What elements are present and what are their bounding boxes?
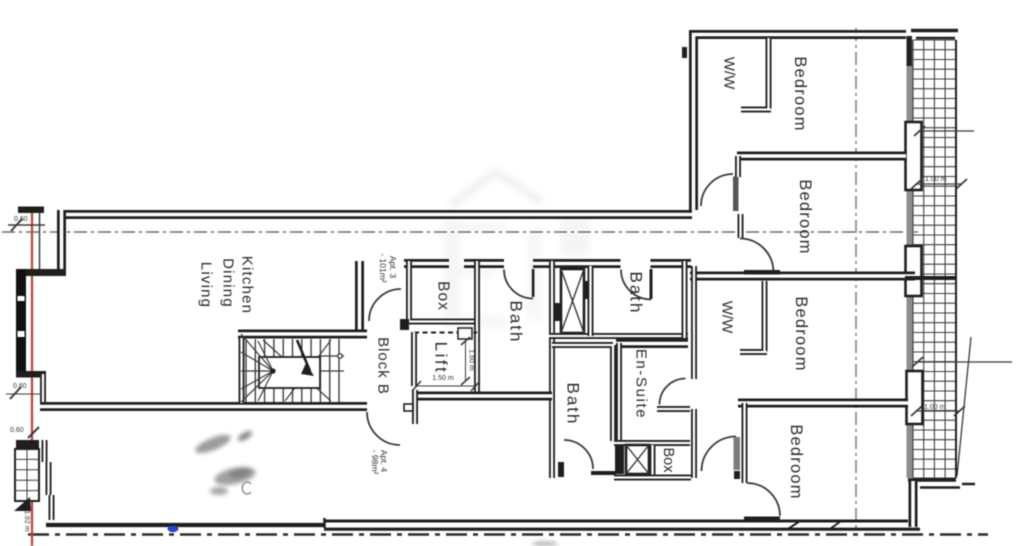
svg-text:W/W: W/W [719,301,736,334]
svg-text:1.00 m: 1.00 m [925,176,947,183]
svg-text:- 98m²: - 98m² [370,450,380,475]
svg-text:Bedroom: Bedroom [796,179,814,254]
svg-text:Lift: Lift [432,342,451,375]
svg-text:Box: Box [660,448,676,474]
svg-text:Box: Box [435,281,452,311]
svg-text:1.50 m: 1.50 m [432,375,454,382]
svg-text:Bedroom: Bedroom [792,296,810,371]
svg-text:1.60 m: 1.60 m [468,349,475,371]
svg-text:Bath: Bath [507,301,526,344]
svg-text:1.62 m: 1.62 m [23,510,30,532]
svg-text:Bedroom: Bedroom [787,424,805,499]
svg-text:- 101m²: - 101m² [378,253,388,282]
svg-text:Apt. 3: Apt. 3 [388,256,398,278]
svg-text:1.00 m: 1.00 m [924,404,946,411]
svg-text:Dining: Dining [220,258,237,308]
svg-text:Kitchen: Kitchen [239,256,256,314]
svg-text:En-Suite: En-Suite [633,349,650,419]
svg-text:W/W: W/W [721,57,738,90]
svg-text:Living: Living [198,262,215,308]
svg-text:Bath: Bath [627,272,646,315]
svg-text:Bedroom: Bedroom [791,56,809,131]
svg-text:Block B: Block B [375,337,392,395]
svg-text:Bath: Bath [564,383,583,426]
svg-text:0.60: 0.60 [10,427,24,434]
